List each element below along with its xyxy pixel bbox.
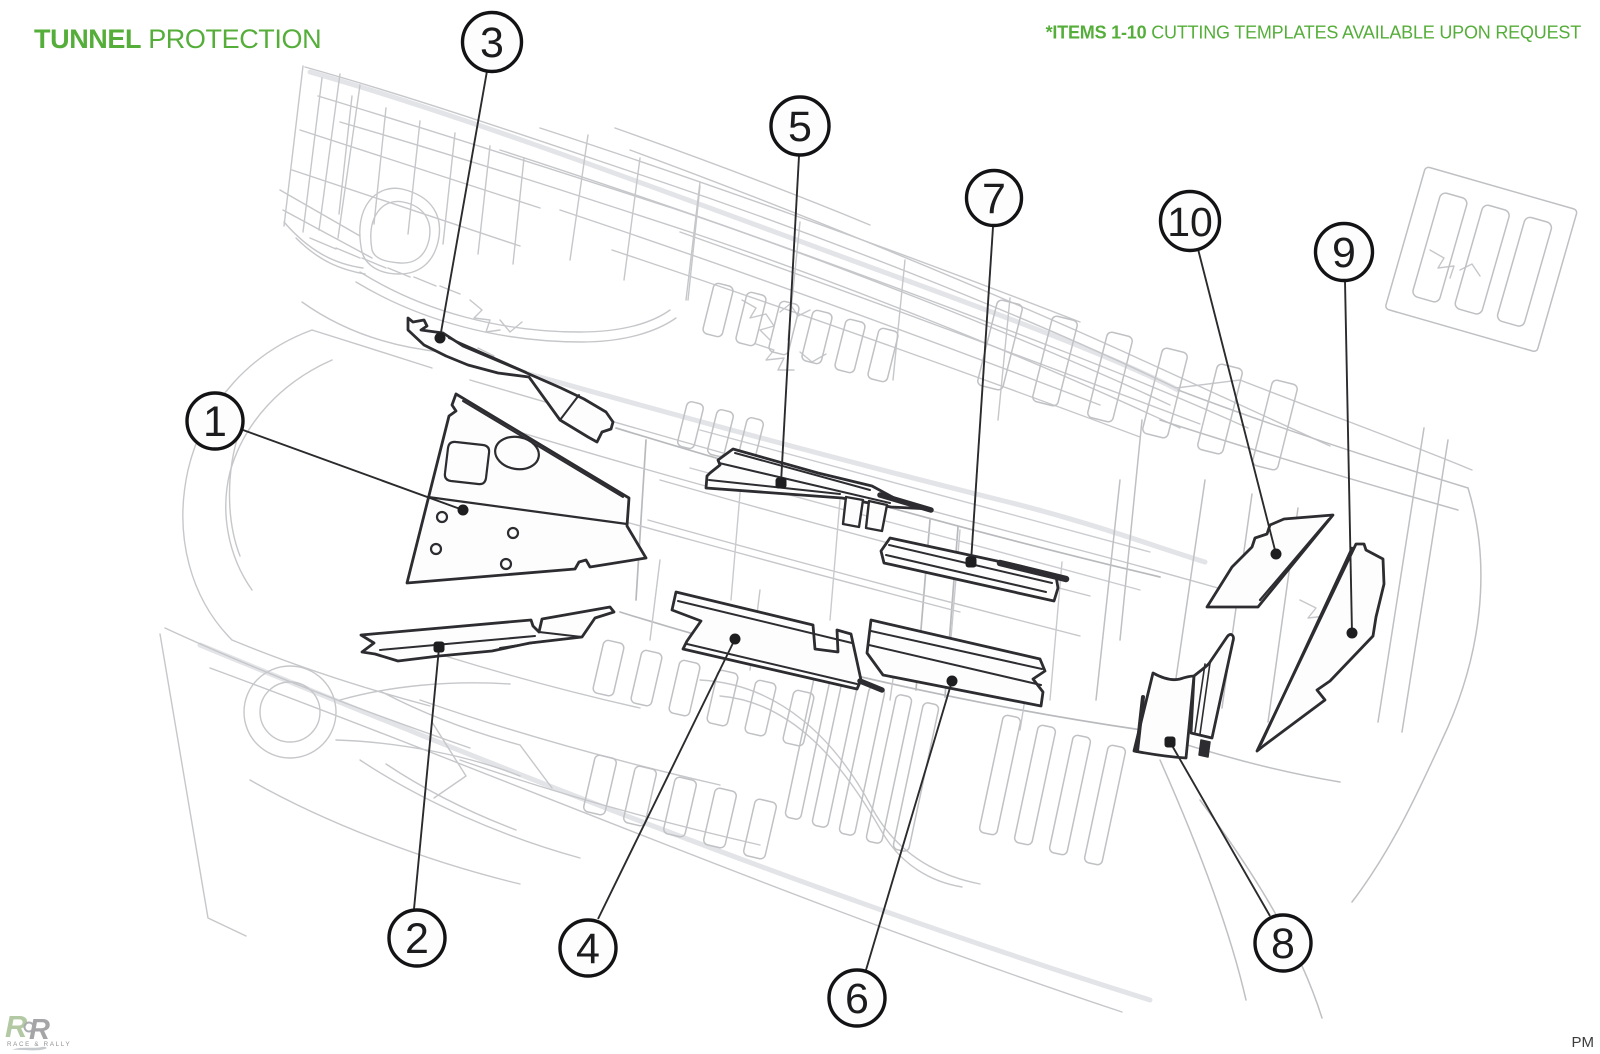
svg-text:2: 2	[405, 915, 429, 963]
svg-text:7: 7	[982, 175, 1006, 223]
svg-text:PM: PM	[1572, 1034, 1595, 1051]
svg-text:3: 3	[480, 19, 504, 67]
svg-text:4: 4	[576, 925, 600, 973]
svg-text:10: 10	[1167, 199, 1213, 245]
svg-text:8: 8	[1271, 920, 1295, 968]
svg-text:RACE & RALLY: RACE & RALLY	[7, 1041, 71, 1048]
svg-text:1: 1	[203, 398, 227, 446]
svg-text:6: 6	[845, 975, 869, 1023]
svg-text:5: 5	[788, 103, 812, 151]
svg-text:*ITEMS 1-10 CUTTING TEMPLATES: *ITEMS 1-10 CUTTING TEMPLATES AVAILABLE …	[1046, 23, 1582, 43]
svg-text:TUNNEL PROTECTION: TUNNEL PROTECTION	[34, 24, 321, 54]
svg-text:9: 9	[1332, 229, 1356, 277]
